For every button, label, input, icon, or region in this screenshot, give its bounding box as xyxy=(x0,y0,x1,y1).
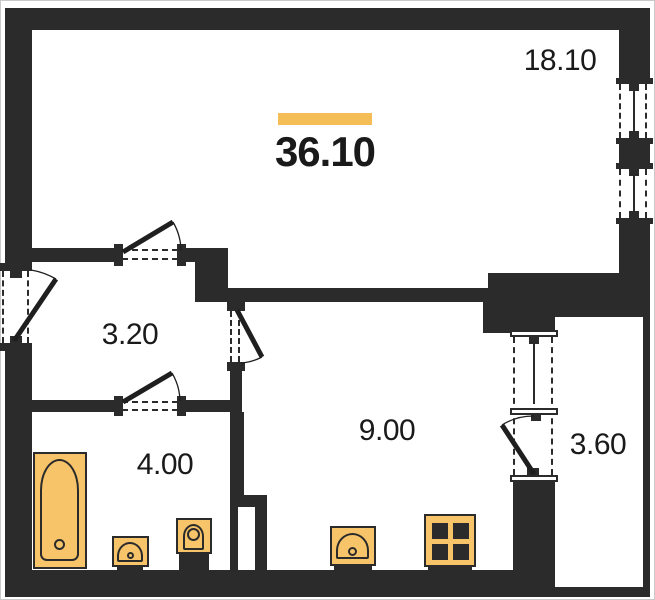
sink-pedestal xyxy=(117,567,143,575)
kitchen-sink-icon xyxy=(330,526,376,566)
kitchen-area-label: 9.00 xyxy=(352,415,422,447)
floor-plan: 36.10 18.10 3.20 4.00 9.00 3.60 xyxy=(0,0,655,600)
living-room-area-label: 18.10 xyxy=(520,45,600,77)
total-area-label: 36.10 xyxy=(255,131,395,173)
kitchen-sink-drain xyxy=(348,547,357,556)
stove-base xyxy=(428,567,472,573)
hallway-area-label: 3.20 xyxy=(95,319,165,351)
stove-icon xyxy=(424,514,476,567)
bathroom-door xyxy=(123,373,180,402)
stove-burner xyxy=(453,523,469,539)
toilet-tank xyxy=(179,554,209,573)
balcony-area-label: 3.60 xyxy=(562,429,634,461)
sink-drain xyxy=(127,552,134,559)
toilet-icon xyxy=(176,518,212,554)
bathtub-drain xyxy=(54,539,65,550)
door-swing-overlay xyxy=(0,0,655,600)
stove-burner xyxy=(432,523,448,539)
toilet-seat xyxy=(187,528,200,541)
living-room-door xyxy=(123,222,181,252)
kitchen-sink-base xyxy=(334,566,372,574)
stove-burner xyxy=(453,544,469,560)
bathtub-icon xyxy=(33,452,87,569)
bathroom-area-label: 4.00 xyxy=(130,449,200,481)
stove-burner xyxy=(432,544,448,560)
kitchen-door xyxy=(237,310,262,363)
sink-icon xyxy=(112,536,149,567)
entrance-door xyxy=(14,270,56,341)
total-area-accent-bar xyxy=(278,113,372,125)
balcony-door xyxy=(502,416,534,474)
